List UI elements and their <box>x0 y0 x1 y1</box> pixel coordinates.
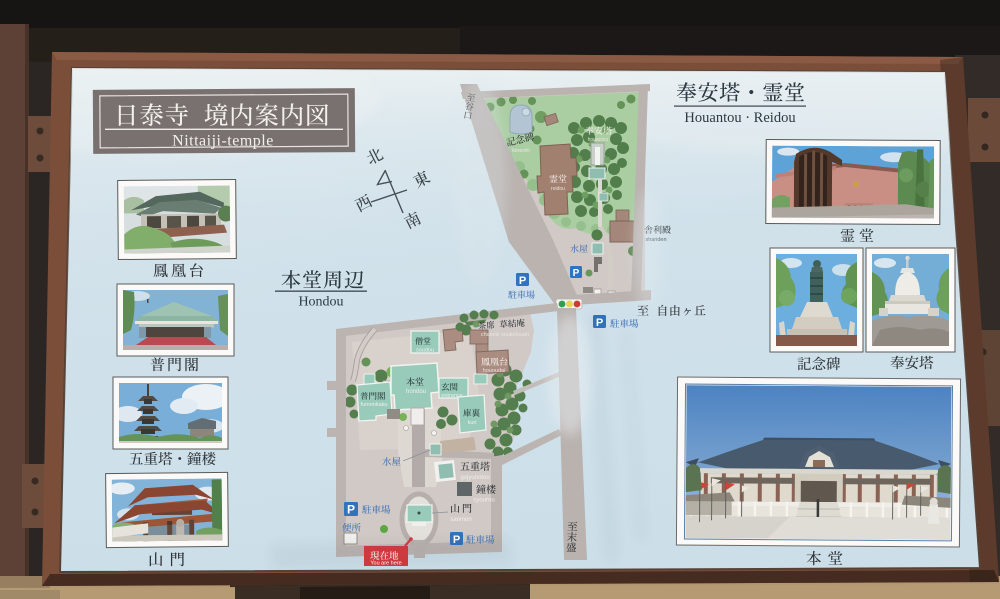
svg-text:syourou: syourou <box>473 498 494 504</box>
svg-text:P: P <box>347 503 355 517</box>
svg-text:sanmon: sanmon <box>450 517 471 523</box>
svg-text:chaseki souketsuan: chaseki souketsuan <box>481 332 529 338</box>
svg-text:soudou: soudou <box>416 348 434 354</box>
svg-text:kuri: kuri <box>468 420 477 426</box>
svg-text:reidou: reidou <box>551 186 565 192</box>
svg-text:P: P <box>573 268 580 279</box>
svg-text:houantou: houantou <box>588 137 609 143</box>
svg-text:Hondou: Hondou <box>298 295 343 310</box>
svg-text:Nittaiji-temple: Nittaiji-temple <box>172 133 274 150</box>
svg-text:P: P <box>519 275 526 287</box>
svg-text:gojyunotou: gojyunotou <box>460 475 489 481</box>
svg-text:kinenhi: kinenhi <box>512 148 529 154</box>
svg-text:Houantou · Reidou: Houantou · Reidou <box>684 110 795 126</box>
svg-text:hououdai: hououdai <box>483 368 506 374</box>
svg-text:fumonkaku: fumonkaku <box>361 402 388 408</box>
svg-text:hondou: hondou <box>406 389 426 395</box>
